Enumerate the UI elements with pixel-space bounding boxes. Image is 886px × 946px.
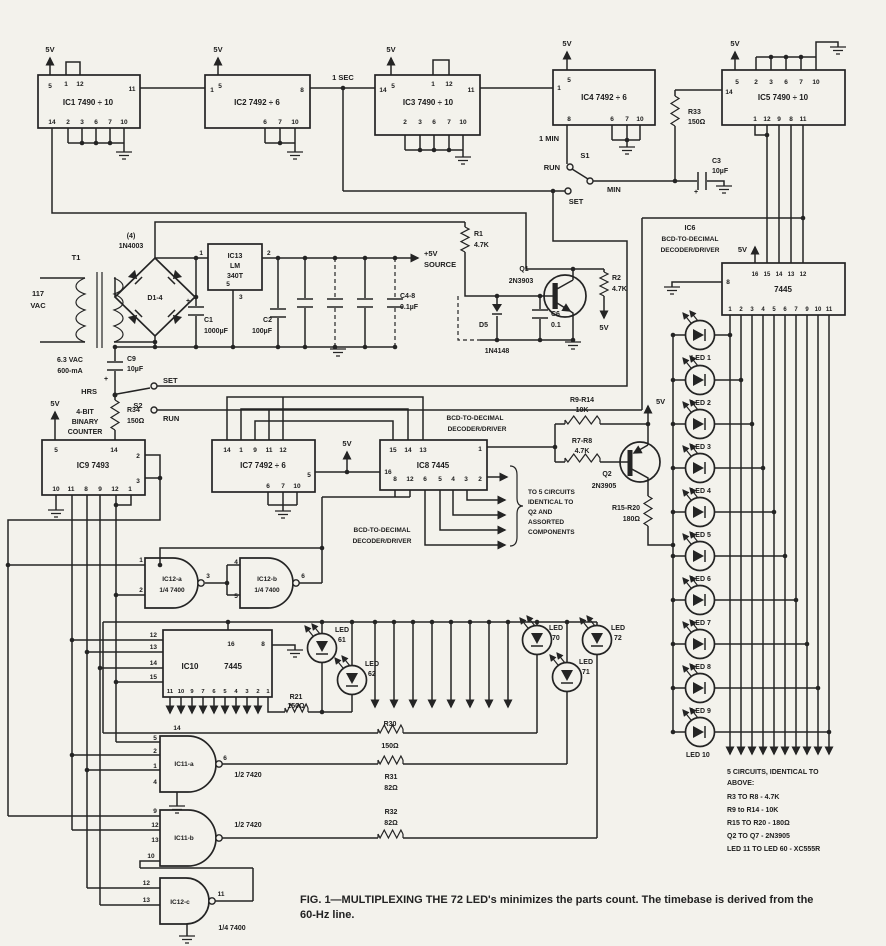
schematic-label: + [104,376,108,383]
ground-icon [48,510,64,517]
schematic-label: LED [335,627,349,634]
nand-ic11b-bubble-icon [216,835,222,841]
junction-dot [671,730,676,735]
junction-dot [761,466,766,471]
nand-ic12a-gate-icon [145,558,198,608]
junction-dot [276,345,281,350]
schematic-label: 10 [52,486,60,493]
schematic-label: 14 [404,447,412,454]
ground-icon [619,147,635,154]
schematic-label: +5V [424,249,438,258]
schematic-label: 1 MIN [539,134,559,143]
schematic-label: 11 [68,486,75,493]
schematic-label: 4.7K [575,448,590,455]
arrow-icon [453,490,505,515]
schematic-label: 12 [76,81,84,88]
junction-dot [341,86,346,91]
schematic-label: R7-R8 [572,438,592,445]
schematic-label: 2 [66,119,70,126]
schematic-label: 7 [278,119,282,126]
schematic-label: 4.7K [474,242,489,249]
ground-icon [116,152,132,159]
junction-dot [495,294,500,299]
schematic-label: C1 [204,317,213,324]
schematic-label: R15-R20 [612,505,640,512]
c5-capacitor-icon [327,299,343,307]
junction-dot [671,333,676,338]
schematic-label: BCD-TO-DECIMAL [447,415,504,422]
junction-dot [278,141,283,146]
schematic-label: 10 [291,119,299,126]
junction-dot [553,445,558,450]
schematic-label: IC12-b [257,576,277,583]
schematic-label: 6 [432,119,436,126]
junction-dot [495,338,500,343]
junction-dot [646,422,651,427]
schematic-label: 9 [253,447,257,454]
schematic-label: 14 [150,660,158,667]
led61-led-icon [305,624,337,663]
nand-ic11a-bubble-icon [216,761,222,767]
c9-capacitor-icon [107,362,123,370]
schematic-label: 1 [153,763,157,770]
led1-led-icon [683,311,715,350]
schematic-label: 1/4 7400 [159,587,185,594]
schematic-label: 5V [562,39,571,48]
schematic-label: T1 [72,253,81,262]
c7-capacitor-icon [357,299,373,307]
wires-layer [8,42,838,936]
schematic-label: 5V [50,399,59,408]
schematic-label: LED 11 TO LED 60 - XC555R [727,846,820,853]
schematic-label: 12 [151,822,159,829]
schematic-label: 5V [599,323,608,332]
schematic-label: 8 [300,87,304,94]
schematic-label: 16 [227,641,235,648]
junction-dot [765,133,770,138]
schematic-label: 5 [218,83,222,90]
schematic-label: LED [549,625,563,632]
junction-dot [153,345,158,350]
schematic-label: 7 [281,483,285,490]
junction-dot [673,179,678,184]
schematic-label: 12 [279,447,287,454]
schematic-label: 4 [234,559,238,566]
wire [8,42,838,936]
junction-dot [6,563,11,568]
schematic-label: 1000µF [204,328,229,335]
schematic-label: 10 [178,689,184,695]
schematic-label: LED [611,625,625,632]
schematic-label: 6 [301,573,305,580]
r32-resistor-icon [378,830,403,838]
ground-icon [565,342,581,349]
junction-dot [750,422,755,427]
c4-capacitor-icon [297,299,313,307]
schematic-label: 1 [557,85,561,92]
schematic-label: 1 [431,81,435,88]
schematic-label: 2N3903 [509,278,534,285]
schematic-label: Q1 [519,266,528,273]
led62-led-icon [335,656,367,695]
junction-dot [85,768,90,773]
schematic-label: 1 SEC [332,73,354,82]
schematic-label: 2 [754,79,758,86]
junction-dot [225,581,230,586]
schematic-label: 8 [261,641,265,648]
schematic-label: 1 [210,87,214,94]
schematic-label: 3 [136,478,140,485]
ground-icon [330,349,346,356]
junction-dot [98,666,103,671]
schematic-label: C6 [551,311,560,318]
schematic-label: 15 [389,447,397,454]
schematic-label: 12 [111,486,119,493]
schematic-label: 3 [418,119,422,126]
schematic-label: 70 [552,635,560,642]
schematic-label: 180Ω [623,516,641,523]
schematic-label: 4 [234,689,238,695]
schematic-label: 10 [459,119,467,126]
schematic-label: 10 [815,307,822,313]
schematic-label: 9 [190,689,194,695]
junction-dot [393,256,398,261]
schematic-label: 14 [173,725,181,732]
schematic-label: 1 [139,557,143,564]
schematic-label: 6.3 VAC [57,357,83,364]
nand-ic12b-bubble-icon [293,580,299,586]
r31-resistor-icon [378,756,403,764]
junction-dot [80,141,85,146]
junction-dot [671,510,676,515]
r9-r14-resistor-icon [565,416,600,424]
schematic-label: 5V [342,439,351,448]
schematic-label: BINARY [72,419,99,426]
schematic-label: 14 [379,87,387,94]
junction-dot [784,55,789,60]
schematic-label: IC3 7490 ÷ 10 [403,98,454,107]
junction-dot [827,730,832,735]
schematic-label: BCD-TO-DECIMAL [354,527,411,534]
junction-dot [158,563,163,568]
schematic-label: 8 [567,116,571,123]
schematic-label: 72 [614,635,622,642]
schematic-label: 82Ω [384,785,398,792]
schematic-label: Q2 TO Q7 - 2N3905 [727,833,790,840]
schematic-label: 10 [120,119,128,126]
schematic-label: R32 [385,809,398,816]
brace-icon [510,466,523,546]
schematic-label: DECODER/DRIVER [353,538,412,545]
junction-dot [363,345,368,350]
schematic-label: Q2 [602,471,611,478]
junction-dot [671,378,676,383]
schematic-label: 14 [110,447,118,454]
junction-dot [671,598,676,603]
schematic-label: LED 4 [691,488,711,495]
schematic-label: 150Ω [381,743,399,750]
junction-dot [728,333,733,338]
schematic-label: 0.1µF [400,304,419,311]
schematic-label: 3 [245,689,249,695]
junction-dot [571,338,576,343]
schematic-label: 6 [212,689,216,695]
schematic-label: 16 [384,469,392,476]
d5-diode-icon [492,304,502,314]
ground-icon [716,186,732,193]
junction-dot [70,753,75,758]
junction-dot [671,642,676,647]
schematic-label: LED 1 [691,355,711,362]
schematic-label: 13 [150,644,158,651]
schematic-label: D1-4 [147,295,162,302]
schematic-label: SET [163,376,178,385]
schematic-label: 117 [32,289,44,298]
schematic-label: ABOVE: [727,780,754,787]
schematic-label: 6 [94,119,98,126]
schematic-label: 13 [788,272,795,278]
schematic-label: 12 [763,116,771,123]
schematic-label: 5 [48,83,52,90]
schematic-label: 13 [151,837,159,844]
junction-dot [783,554,788,559]
schematic-label: 14 [776,272,783,278]
schematic-label: 6 [783,307,787,313]
junction-dot [363,256,368,261]
junction-dot [320,620,325,625]
schematic-label: COMPONENTS [528,529,575,536]
junction-dot [571,267,576,272]
schematic-label: DECODER/DRIVER [661,247,720,254]
schematic-label: 3 [464,476,468,483]
schematic-label: 12 [800,272,807,278]
switch-s1[interactable] [565,164,593,194]
caption-line1: FIG. 1—MULTIPLEXING THE 72 LED's minimiz… [300,894,813,906]
junction-dot [94,141,99,146]
schematic-page: 5V5V5V5V5V5V5V5V5V5VIC1 7490 ÷ 10IC2 749… [0,0,886,946]
junction-dot [816,686,821,691]
junction-dot [430,620,435,625]
schematic-label: C2 [263,317,272,324]
schematic-label: LED [579,659,593,666]
schematic-label: IC7 7492 ÷ 6 [240,461,286,470]
schematic-label: 11 [468,87,475,94]
schematic-label: D5 [479,322,488,329]
schematic-label: 10µF [712,168,729,175]
junction-dot [625,138,630,143]
schematic-label: DECODER/DRIVER [448,426,507,433]
schematic-label: 6 [423,476,427,483]
schematic-label: 5 [438,476,442,483]
schematic-label: 4.7K [612,286,627,293]
schematic-label: IC13 [228,253,243,260]
schematic-label: 0.1 [551,322,561,329]
schematic-label: IC12-a [162,576,182,583]
schematic-label: 1N4003 [119,243,144,250]
schematic-label: 14 [223,447,231,454]
ic-boxes-layer [38,70,845,697]
schematic-label: 10 [293,483,301,490]
schematic-label: IC5 7490 ÷ 10 [758,93,809,102]
schematic-label: 12 [445,81,453,88]
r2-resistor-icon [600,272,608,296]
junction-dot [393,345,398,350]
schematic-label: 1 [728,307,732,313]
junction-dot [506,620,511,625]
schematic-label: TO 5 CIRCUITS [528,489,575,496]
schematic-label: 11 [800,116,807,123]
schematic-label: 7445 [774,285,792,294]
schematic-label: 8 [726,279,730,286]
junction-dot [194,256,199,261]
schematic-label: 13 [143,897,151,904]
dashed-wire [335,258,480,347]
schematic-label: 6 [263,119,267,126]
schematic-label: C4-8 [400,293,415,300]
ground-icon [179,936,195,943]
junction-dot [194,295,199,300]
schematic-label: 1 [266,689,270,695]
ic10-box [163,630,272,697]
schematic-label: 5 [226,281,230,288]
schematic-label: IC11-b [174,835,194,842]
nand-ic12a-bubble-icon [198,580,204,586]
schematic-label: R15 TO R20 - 180Ω [727,820,790,827]
schematic-label: R1 [474,231,483,238]
schematic-label: 4 [451,476,455,483]
junction-dot [432,148,437,153]
c1-capacitor-icon [188,307,204,315]
junction-dot [447,148,452,153]
arrow-icon [440,490,505,530]
schematic-label: R33 [688,109,701,116]
schematic-label: 11 [218,891,225,898]
arrow-icon [467,490,505,500]
schematic-label: 71 [582,669,590,676]
junction-dot [449,620,454,625]
schematic-label: 10 [147,853,155,860]
schematic-label: SOURCE [424,260,456,269]
schematic-label: LED 7 [691,620,711,627]
schematic-label: 15 [764,272,771,278]
junction-dot [226,620,231,625]
schematic-label: IC6 [685,225,696,232]
schematic-label: 1/2 7420 [234,772,261,779]
caption-line2: 60-Hz line. [300,909,354,921]
r34-resistor-icon [111,400,119,430]
junction-dot [535,620,540,625]
schematic-label: 7 [625,116,629,123]
junction-dot [373,620,378,625]
junction-dot [799,55,804,60]
junction-dot [538,338,543,343]
schematic-label: 5 [234,593,238,600]
nand-ic12b-gate-icon [240,558,293,608]
junction-dot [769,55,774,60]
junction-dot [350,620,355,625]
schematic-label: 5 [567,77,571,84]
junction-dot [671,554,676,559]
schematic-label: 4-BIT [76,409,94,416]
schematic-label: LED 3 [691,444,711,451]
junction-dot [231,345,236,350]
schematic-label: LED 10 [686,752,710,759]
labels-layer: 5V5V5V5V5V5V5V5V5V5VIC1 7490 ÷ 10IC2 749… [30,39,832,932]
schematic-label: 12 [143,880,151,887]
schematic-label: RUN [163,414,179,423]
schematic-label: R31 [385,774,398,781]
schematic-label: 1 [753,116,757,123]
schematic-label: 150Ω [287,703,305,710]
schematic-label: 1 [64,81,68,88]
schematic-label: 5V [656,397,665,406]
ground-icon [455,157,471,164]
schematic-label: 2 [153,748,157,755]
schematic-label: 2 [403,119,407,126]
junction-dot [468,620,473,625]
schematic-label: 2 [267,250,271,257]
schematic-label: 2 [739,307,743,313]
schematic-label: 8 [789,116,793,123]
schematic-label: 5 [223,689,227,695]
schematic-label: 14 [725,89,733,96]
junction-dot [108,141,113,146]
schematic-label: Q2 AND [528,509,553,516]
junction-dot [739,378,744,383]
schematic-label: 2 [256,689,259,695]
schematic-label: 7 [201,689,204,695]
schematic-label: BCD-TO-DECIMAL [662,236,719,243]
schematic-label: 12 [406,476,414,483]
schematic-label: LED 9 [691,708,711,715]
r1-resistor-icon [461,227,469,252]
schematic-label: LED 6 [691,576,711,583]
schematic-label: LM [230,263,240,270]
junction-dot [805,642,810,647]
schematic-label: 9 [777,116,781,123]
schematic-label: R9-R14 [570,397,594,404]
schematic-label: 6 [784,79,788,86]
junction-dot [551,189,556,194]
schematic-label: 5V [45,45,54,54]
schematic-label: 3 [206,573,210,580]
circuit-schematic: 5V5V5V5V5V5V5V5V5V5VIC1 7490 ÷ 10IC2 749… [0,0,886,946]
schematic-label: (4) [127,233,136,240]
schematic-label: IC12-c [170,899,190,906]
r7-r8-resistor-icon [565,454,600,462]
junction-dot [345,470,350,475]
schematic-label: 7 [447,119,451,126]
junction-dot [194,345,199,350]
c6-capacitor-icon [532,310,548,318]
schematic-label: MIN [607,185,621,194]
schematic-label: R30 [384,721,397,728]
schematic-label: 5V [738,245,747,254]
schematic-label: 4 [761,307,765,313]
figure-caption: FIG. 1—MULTIPLEXING THE 72 LED's minimiz… [300,893,865,923]
schematic-label: 5V [730,39,739,48]
schematic-label: 10 [812,79,820,86]
junction-dot [320,546,325,551]
schematic-label: 5 [153,735,157,742]
junction-dot [114,680,119,685]
schematic-label: 11 [129,86,136,93]
schematic-label: 100µF [252,328,273,335]
schematic-label: + [186,298,190,305]
schematic-label: 16 [752,272,759,278]
junction-dot [113,345,118,350]
schematic-label: C3 [712,158,721,165]
